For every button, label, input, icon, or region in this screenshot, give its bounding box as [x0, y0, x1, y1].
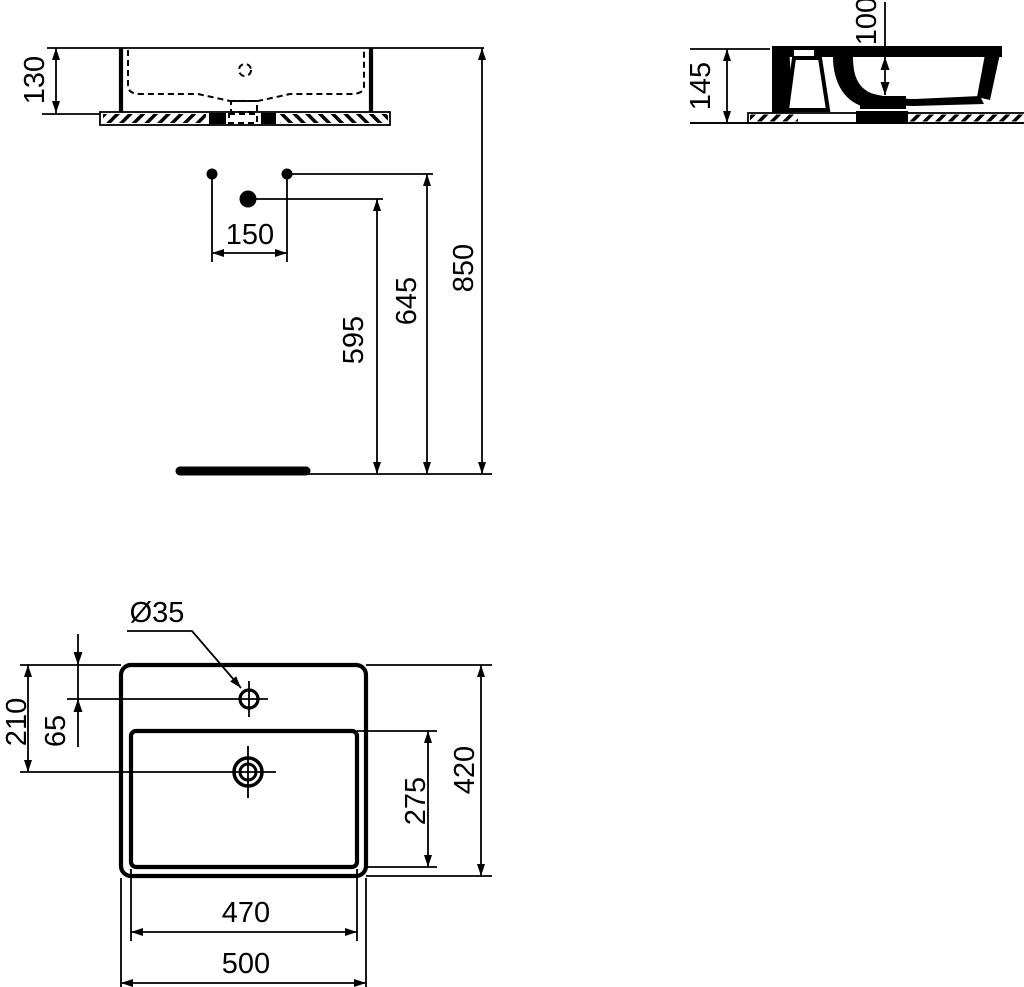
dim-label-275: 275 [400, 777, 432, 825]
plan-inner-bowl [131, 731, 357, 867]
dim-fixing-height: 645 [391, 174, 427, 474]
dim-bowl-depth: 275 [400, 731, 432, 867]
dim-label-420: 420 [449, 746, 481, 794]
drain-hole [20, 746, 276, 798]
side-basin-section [772, 46, 1002, 115]
technical-drawing-page: 130 145 [0, 0, 1024, 987]
front-drain-hidden [231, 101, 257, 112]
dim-label-130: 130 [19, 56, 51, 104]
dim-drain-height: 595 [338, 199, 377, 474]
dim-side-overall-height: 145 [685, 49, 770, 123]
dim-label-470: 470 [222, 897, 270, 929]
dim-label-595: 595 [338, 316, 370, 364]
dim-label-850: 850 [448, 244, 480, 292]
dim-label-d35: Ø35 [130, 597, 185, 629]
front-bowl-hidden-outline [128, 50, 364, 101]
dim-bowl-width: 470 [131, 897, 357, 932]
dim-overall-width: 500 [121, 948, 366, 983]
dim-label-150: 150 [226, 219, 274, 251]
dim-label-100: 100 [851, 0, 883, 45]
dim-label-210: 210 [1, 698, 33, 746]
plan-outer-rim [121, 665, 366, 876]
front-basin-walls [121, 48, 371, 112]
dim-label-645: 645 [391, 277, 423, 325]
dim-fixing-spacing: 150 [212, 219, 287, 253]
tap-hole [67, 681, 268, 717]
dim-tap-hole-diameter: Ø35 [127, 597, 241, 688]
dim-label-500: 500 [222, 948, 270, 980]
front-view: 130 [19, 48, 484, 125]
side-section-view: 145 100 [685, 0, 1024, 123]
dim-label-145: 145 [685, 62, 717, 110]
dim-front-rim-height: 130 [19, 48, 100, 114]
dim-rim-height-from-floor: 850 [448, 48, 482, 474]
front-wall-bracket [100, 112, 390, 125]
plan-view: Ø35 210 65 275 420 [1, 597, 492, 987]
overflow-hole [239, 64, 251, 76]
dim-drain-offset: 210 [1, 665, 33, 772]
dim-overall-depth: 420 [449, 665, 481, 876]
side-leg-cutout [787, 58, 828, 110]
dim-tap-hole-offset: 65 [40, 634, 83, 747]
washbasin-technical-drawing: 130 145 [0, 0, 1024, 987]
dim-label-65: 65 [40, 715, 72, 747]
